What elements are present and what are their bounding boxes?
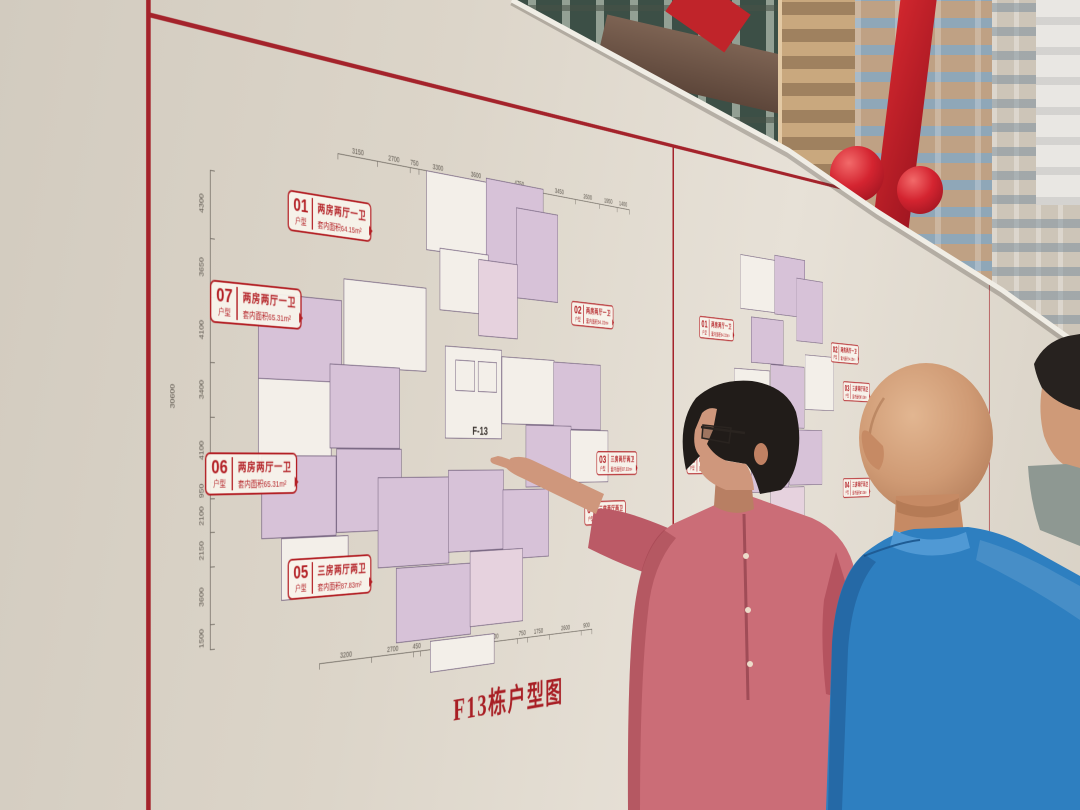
dimension-segment: 4300 [211,170,215,240]
dimension-segment: 2600 [550,631,582,640]
building-white-tower [1036,0,1080,205]
dimension-segment: 1950 [600,204,617,212]
dimension-value: 2700 [387,644,398,654]
unit-description: 三房两厅两卫 [599,503,623,514]
unit-area: 套内面积64.15m² [841,355,857,363]
plan-room [771,364,805,428]
unit-type-label: 户型 [599,465,606,472]
unit-label-05: 05户型三房两厅两卫套内面积87.83m² [288,554,372,600]
unit-number: 02 [574,304,581,316]
unit-type-label: 户型 [701,329,707,336]
unit-label-01: 01户型两房两厅一卫套内面积64.15m² [699,316,734,342]
elevator-core [478,361,497,393]
poster-frame-divider-1 [672,144,674,755]
unit-number: 03 [845,383,850,392]
plan-room [430,633,494,673]
dimension-segment: 1750 [528,635,550,643]
unit-label-06: 06户型两房两厅一卫套内面积65.31m² [205,452,297,495]
unit-label-02: 02户型两房两厅一卫套内面积64.15m² [571,301,613,330]
dimension-value: 1400 [619,199,627,208]
unit-description: 三房两厅两卫 [611,454,635,464]
plan-room [396,563,471,644]
poster-title: F13栋户型图 [418,664,592,736]
unit-type-label: 户型 [216,305,232,319]
poster-frame-left [146,0,151,810]
dimension-value: 1950 [604,196,612,205]
unit-label-03: 03户型三房两厅两卫套内面积87.83m² [843,381,870,402]
dimension-segment: 1500 [211,625,215,650]
dimension-segment: 900 [581,630,592,636]
poster-note: 注：1.三房两厅户型… [671,726,711,746]
plan-room [790,429,823,485]
dimension-total: 30600 [168,384,175,409]
unit-label-02: 02户型两房两厅一卫套内面积64.15m² [831,342,859,364]
unit-type-label: 户型 [845,489,850,495]
unit-area: 套内面积65.31m² [699,465,720,472]
poster-frame-divider-2 [989,224,990,681]
dimension-value: 2100 [198,506,205,526]
dimension-segment: 450 [414,651,421,657]
plan-room [378,477,449,569]
unit-label-01: 01户型两房两厅一卫套内面积64.15m² [288,189,372,242]
plan-room [344,278,427,371]
unit-label-04: 04户型三房两厅两卫套内面积87.83m² [843,478,870,498]
dimension-segment: 2700 [372,652,414,662]
unit-type-label: 户型 [211,477,227,490]
plan-room [553,362,600,431]
dimension-value: 2600 [561,623,570,632]
unit-area: 套内面积65.31m² [238,476,292,490]
unit-area: 套内面积87.83m² [852,489,868,495]
plan-room [502,356,555,425]
plan-room [448,470,504,553]
dimension-value: 3400 [198,380,205,400]
dimension-value: 3200 [340,650,352,660]
unit-number: 01 [293,195,308,216]
dimension-segment: 750 [410,168,419,175]
unit-area: 套内面积65.31m² [243,307,296,325]
dimension-segment: 2700 [378,162,410,173]
unit-label-04: 04户型三房两厅两卫套内面积87.83m² [584,500,625,526]
plan-room [470,548,523,627]
unit-description: 两房两厅一卫 [238,457,292,475]
plan-room [478,259,517,339]
dimension-segment: 1400 [617,208,629,215]
unit-type-label: 户型 [833,354,838,360]
unit-number: 02 [833,345,838,355]
dimension-value: 1750 [534,627,543,636]
unit-description: 两房两厅一卫 [243,288,296,311]
dimension-value: 900 [583,621,589,629]
elevator-core [455,360,474,392]
unit-area: 套内面积87.83m² [611,465,635,473]
unit-type-label: 户型 [587,515,594,522]
dimension-segment: 2100 [211,499,215,533]
dimension-segment: 2150 [211,533,215,568]
dimension-value: 3450 [555,187,564,196]
unit-description: 三房两厅两卫 [852,384,868,393]
unit-number: 03 [599,454,606,465]
dimension-segment: 3150 [338,154,378,167]
dimension-value: 2600 [583,192,592,201]
dimension-value: 4300 [198,193,205,213]
plan-room [805,354,834,411]
title-rule [630,642,859,695]
dimension-segment: 2600 [576,200,600,209]
unit-area: 套内面积64.15m² [711,330,731,339]
plan-room [796,278,822,344]
dimension-segment: 3450 [543,194,576,205]
plan-room [751,317,783,366]
dimension-value: 2700 [388,153,399,164]
unit-number: 04 [845,480,850,489]
dimension-value: 950 [198,484,205,499]
unit-area: 套内面积64.15m² [586,316,611,326]
unit-type-label: 户型 [574,315,581,323]
unit-type-label: 户型 [689,465,695,472]
unit-number: 04 [587,504,594,516]
unit-label-06: 06户型两房两厅一卫套内面积65.31m² [687,452,722,474]
unit-label-03: 03户型三房两厅两卫套内面积87.83m² [596,451,637,475]
plan-room [734,368,770,428]
dimension-segment: 3600 [211,568,215,626]
unit-description: 两房两厅一卫 [841,345,857,355]
dimension-value: 750 [410,158,418,168]
unit-area: 套内面积87.83m² [852,393,868,400]
unit-description: 三房两厅两卫 [318,559,367,579]
plan-room [771,486,805,530]
unit-number: 01 [701,318,707,329]
unit-description: 三房两厅两卫 [852,480,868,489]
unit-type-label: 户型 [293,214,308,228]
unit-number: 05 [293,562,308,582]
unit-label-07: 07户型两房两厅一卫套内面积65.31m² [210,279,302,330]
dimension-value: 450 [413,641,421,650]
plan-room [751,435,789,493]
dimension-value: 1500 [198,628,205,648]
dimension-value: 3150 [352,146,364,157]
dimension-value: 4100 [198,319,205,339]
dimension-chain-left: 430036504100340041009502100215036001500 [210,170,215,650]
unit-number: 06 [689,454,695,464]
dimension-value: 3600 [198,587,205,607]
dimension-value: 4100 [198,440,205,459]
dimension-value: 2150 [198,541,205,561]
unit-type-label: 户型 [845,393,850,399]
dimension-value: 750 [519,629,526,638]
dimension-segment: 3200 [319,658,372,670]
unit-type-label: 户型 [293,581,308,594]
unit-area: 套内面积87.83m² [599,514,623,522]
plan-room [526,425,572,488]
plan-room [516,207,558,303]
unit-description: 两房两厅一卫 [699,454,720,463]
unit-area: 套内面积87.83m² [318,577,367,593]
dimension-segment: 750 [518,638,528,644]
building-number-label: F-13 [472,424,487,438]
unit-number: 07 [216,285,232,307]
plan-room [330,363,400,448]
photo-scene: 315027007503300360047503450260019501400 … [0,0,1080,810]
red-balloon-2 [897,166,943,214]
dimension-segment: 3400 [211,363,215,418]
dimension-value: 3650 [198,257,205,277]
unit-number: 06 [211,457,227,477]
